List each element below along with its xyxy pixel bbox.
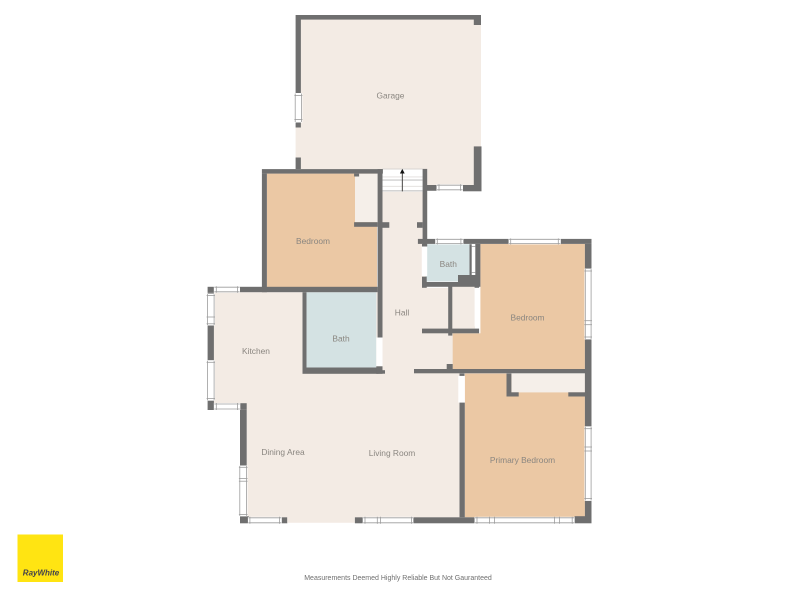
svg-text:Garage: Garage (377, 91, 405, 101)
svg-text:Bedroom: Bedroom (296, 236, 330, 246)
svg-text:Living Room: Living Room (369, 448, 416, 458)
svg-text:Kitchen: Kitchen (242, 346, 270, 356)
svg-text:Bedroom: Bedroom (511, 312, 545, 322)
svg-text:Hall: Hall (395, 307, 410, 317)
svg-text:Bath: Bath (440, 259, 458, 269)
svg-text:Measurements Deemed Highly Rel: Measurements Deemed Highly Reliable But … (304, 575, 492, 582)
svg-text:RayWhite: RayWhite (23, 569, 60, 578)
svg-text:Primary Bedroom: Primary Bedroom (490, 455, 555, 465)
svg-text:Bath: Bath (332, 334, 350, 344)
svg-text:Dining Area: Dining Area (261, 447, 305, 457)
